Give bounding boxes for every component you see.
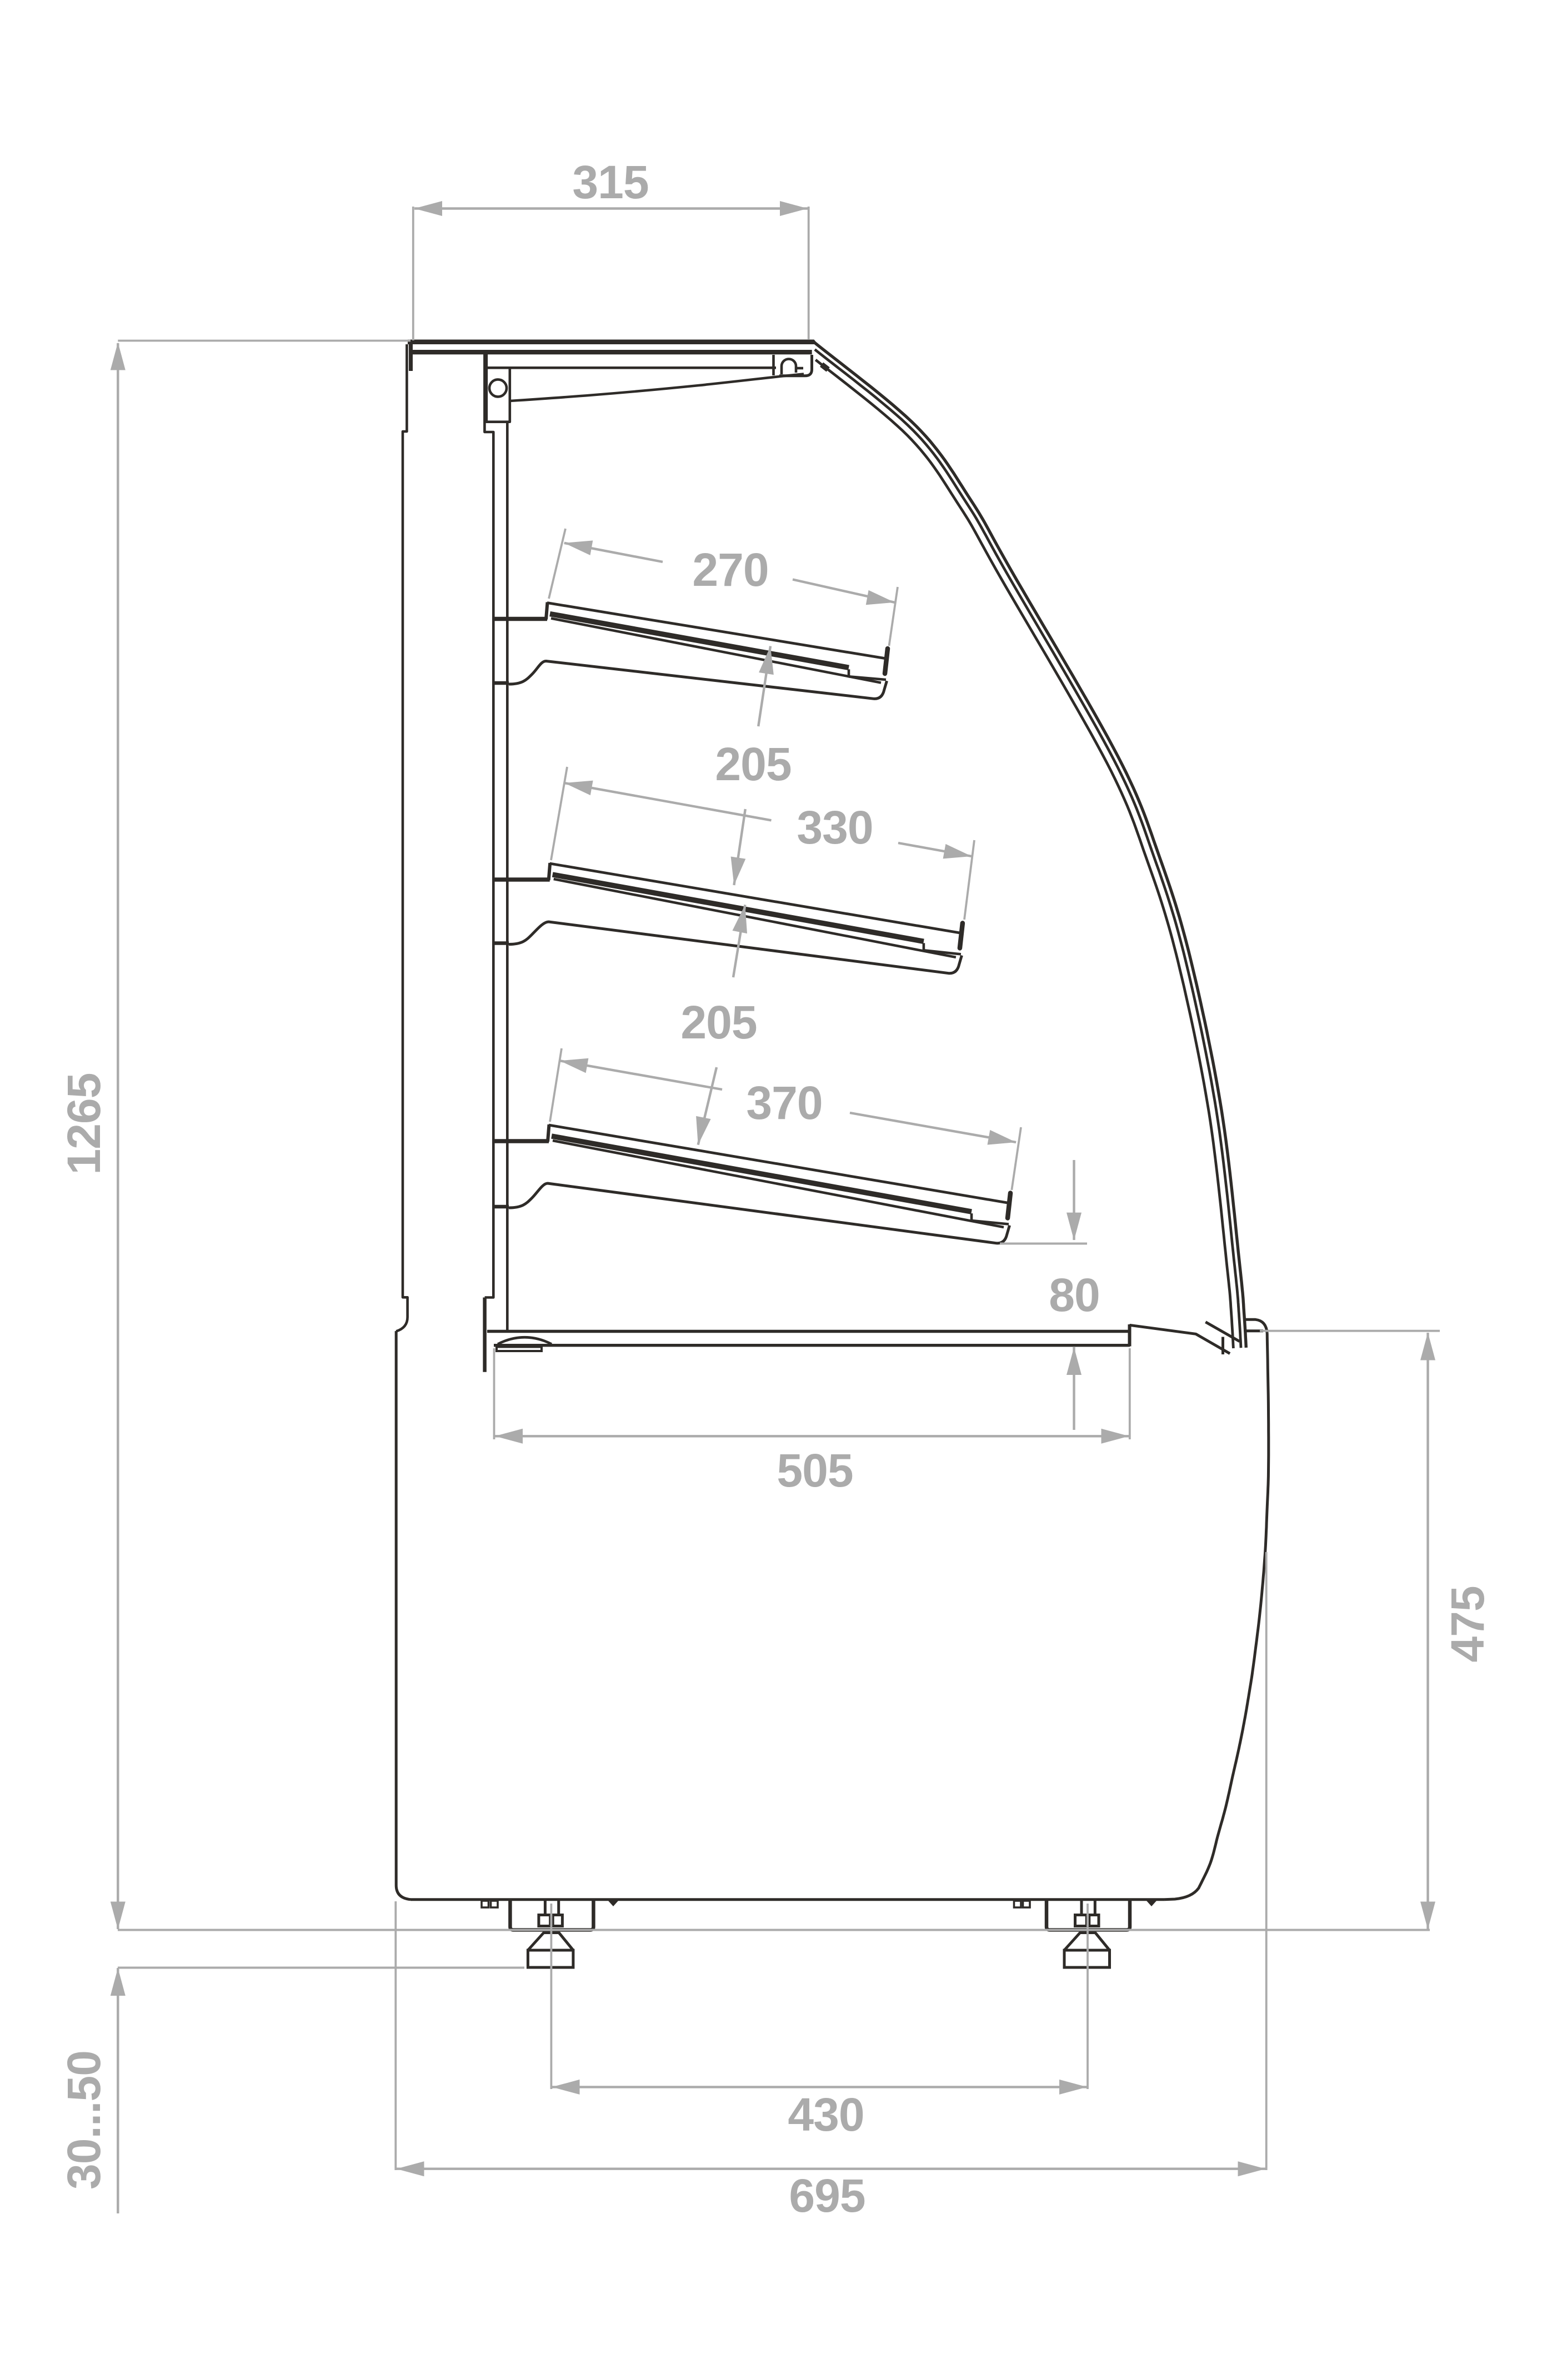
svg-text:270: 270 <box>692 544 768 596</box>
svg-text:205: 205 <box>680 996 757 1048</box>
svg-text:430: 430 <box>788 2088 864 2141</box>
svg-text:370: 370 <box>746 1077 822 1129</box>
svg-text:30...50: 30...50 <box>58 2051 110 2190</box>
svg-text:205: 205 <box>715 738 791 790</box>
svg-text:505: 505 <box>777 1444 853 1497</box>
svg-text:475: 475 <box>1441 1586 1494 1662</box>
svg-text:80: 80 <box>1049 1269 1099 1321</box>
svg-text:695: 695 <box>789 2170 865 2222</box>
svg-text:1265: 1265 <box>58 1073 110 1175</box>
svg-text:330: 330 <box>797 801 873 853</box>
svg-text:315: 315 <box>572 156 648 208</box>
